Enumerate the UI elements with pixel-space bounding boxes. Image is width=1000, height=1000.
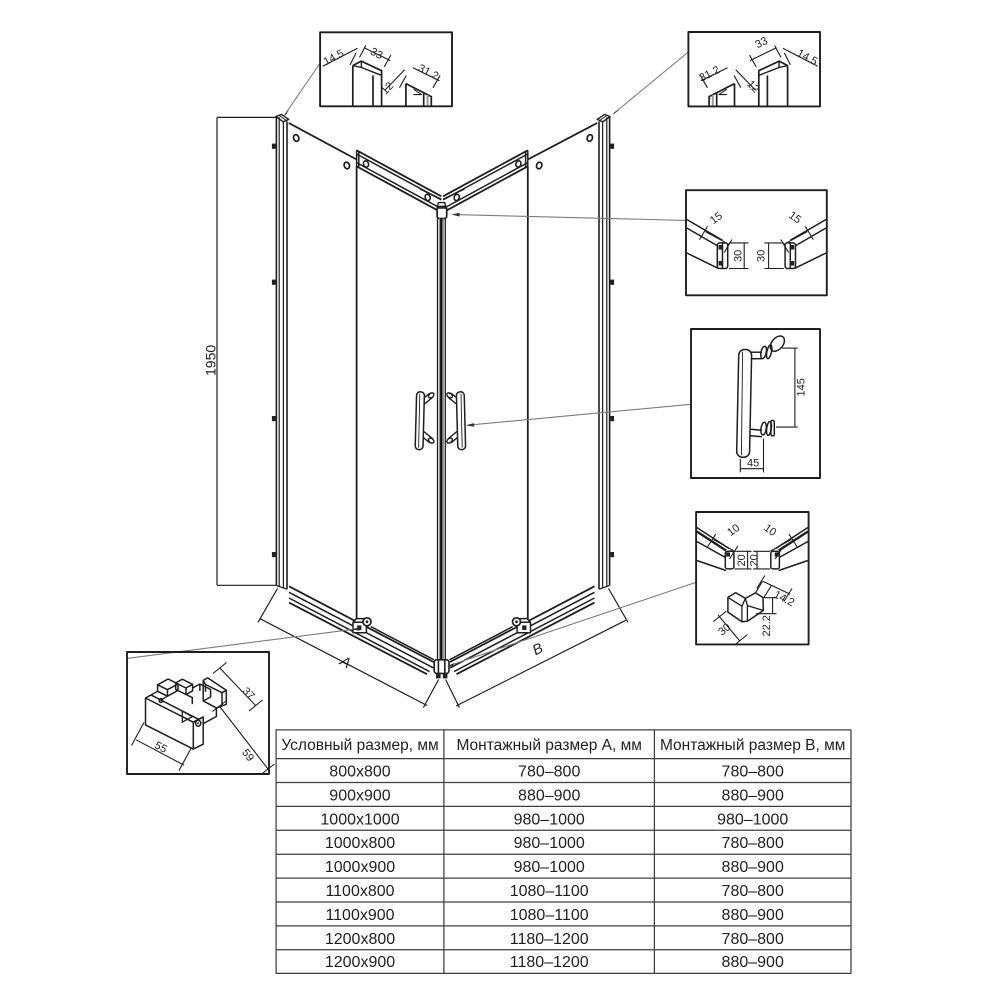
svg-text:880–900: 880–900 [518,787,580,804]
svg-text:14.5: 14.5 [322,47,347,68]
svg-text:980–1000: 980–1000 [514,859,585,876]
svg-text:37: 37 [240,685,257,702]
svg-text:10: 10 [725,522,742,539]
svg-text:33: 33 [753,35,769,51]
svg-text:1000х800: 1000х800 [325,835,395,852]
svg-text:880–900: 880–900 [722,859,784,876]
svg-text:22.2: 22.2 [761,615,773,636]
svg-text:33: 33 [368,46,384,62]
svg-text:1180–1200: 1180–1200 [510,931,589,948]
svg-text:1080–1100: 1080–1100 [510,907,589,924]
svg-text:880–900: 880–900 [722,954,784,971]
svg-text:1080–1100: 1080–1100 [510,883,589,900]
svg-text:1100х800: 1100х800 [325,883,394,900]
svg-text:900х900: 900х900 [329,787,390,804]
svg-text:1200х900: 1200х900 [325,954,395,971]
svg-text:Монтажный размер В, мм: Монтажный размер В, мм [660,737,846,754]
svg-text:780–800: 780–800 [722,764,784,781]
svg-text:31.2: 31.2 [697,64,722,84]
svg-text:800х800: 800х800 [329,764,390,781]
svg-text:45: 45 [747,457,759,469]
svg-text:20: 20 [736,554,748,566]
svg-text:980–1000: 980–1000 [514,811,585,828]
svg-text:780–800: 780–800 [722,931,784,948]
svg-text:780–800: 780–800 [518,764,580,781]
svg-text:880–900: 880–900 [722,907,784,924]
svg-text:1200х800: 1200х800 [325,931,395,948]
svg-text:55: 55 [152,740,168,756]
svg-text:20: 20 [748,554,760,566]
svg-text:30: 30 [733,250,745,262]
svg-text:1000х1000: 1000х1000 [320,811,399,828]
svg-text:14.2: 14.2 [772,589,797,609]
svg-text:1000х900: 1000х900 [325,859,395,876]
svg-text:145: 145 [796,378,808,396]
svg-text:Монтажный размер А, мм: Монтажный размер А, мм [456,737,642,754]
svg-text:1950: 1950 [203,345,219,376]
svg-text:780–800: 780–800 [722,835,784,852]
svg-text:A: A [336,653,353,672]
svg-text:880–900: 880–900 [722,787,784,804]
svg-text:780–800: 780–800 [722,883,784,900]
svg-text:10: 10 [761,522,778,539]
svg-text:1180–1200: 1180–1200 [510,954,589,971]
svg-text:30: 30 [756,250,768,262]
svg-text:B: B [530,640,546,659]
svg-text:15: 15 [708,210,725,227]
svg-text:980–1000: 980–1000 [514,835,585,852]
svg-text:Условный размер, мм: Условный размер, мм [281,737,438,754]
svg-text:15: 15 [786,209,803,226]
svg-text:980–1000: 980–1000 [717,811,788,828]
svg-text:1100х900: 1100х900 [325,907,394,924]
svg-text:30: 30 [716,621,733,638]
